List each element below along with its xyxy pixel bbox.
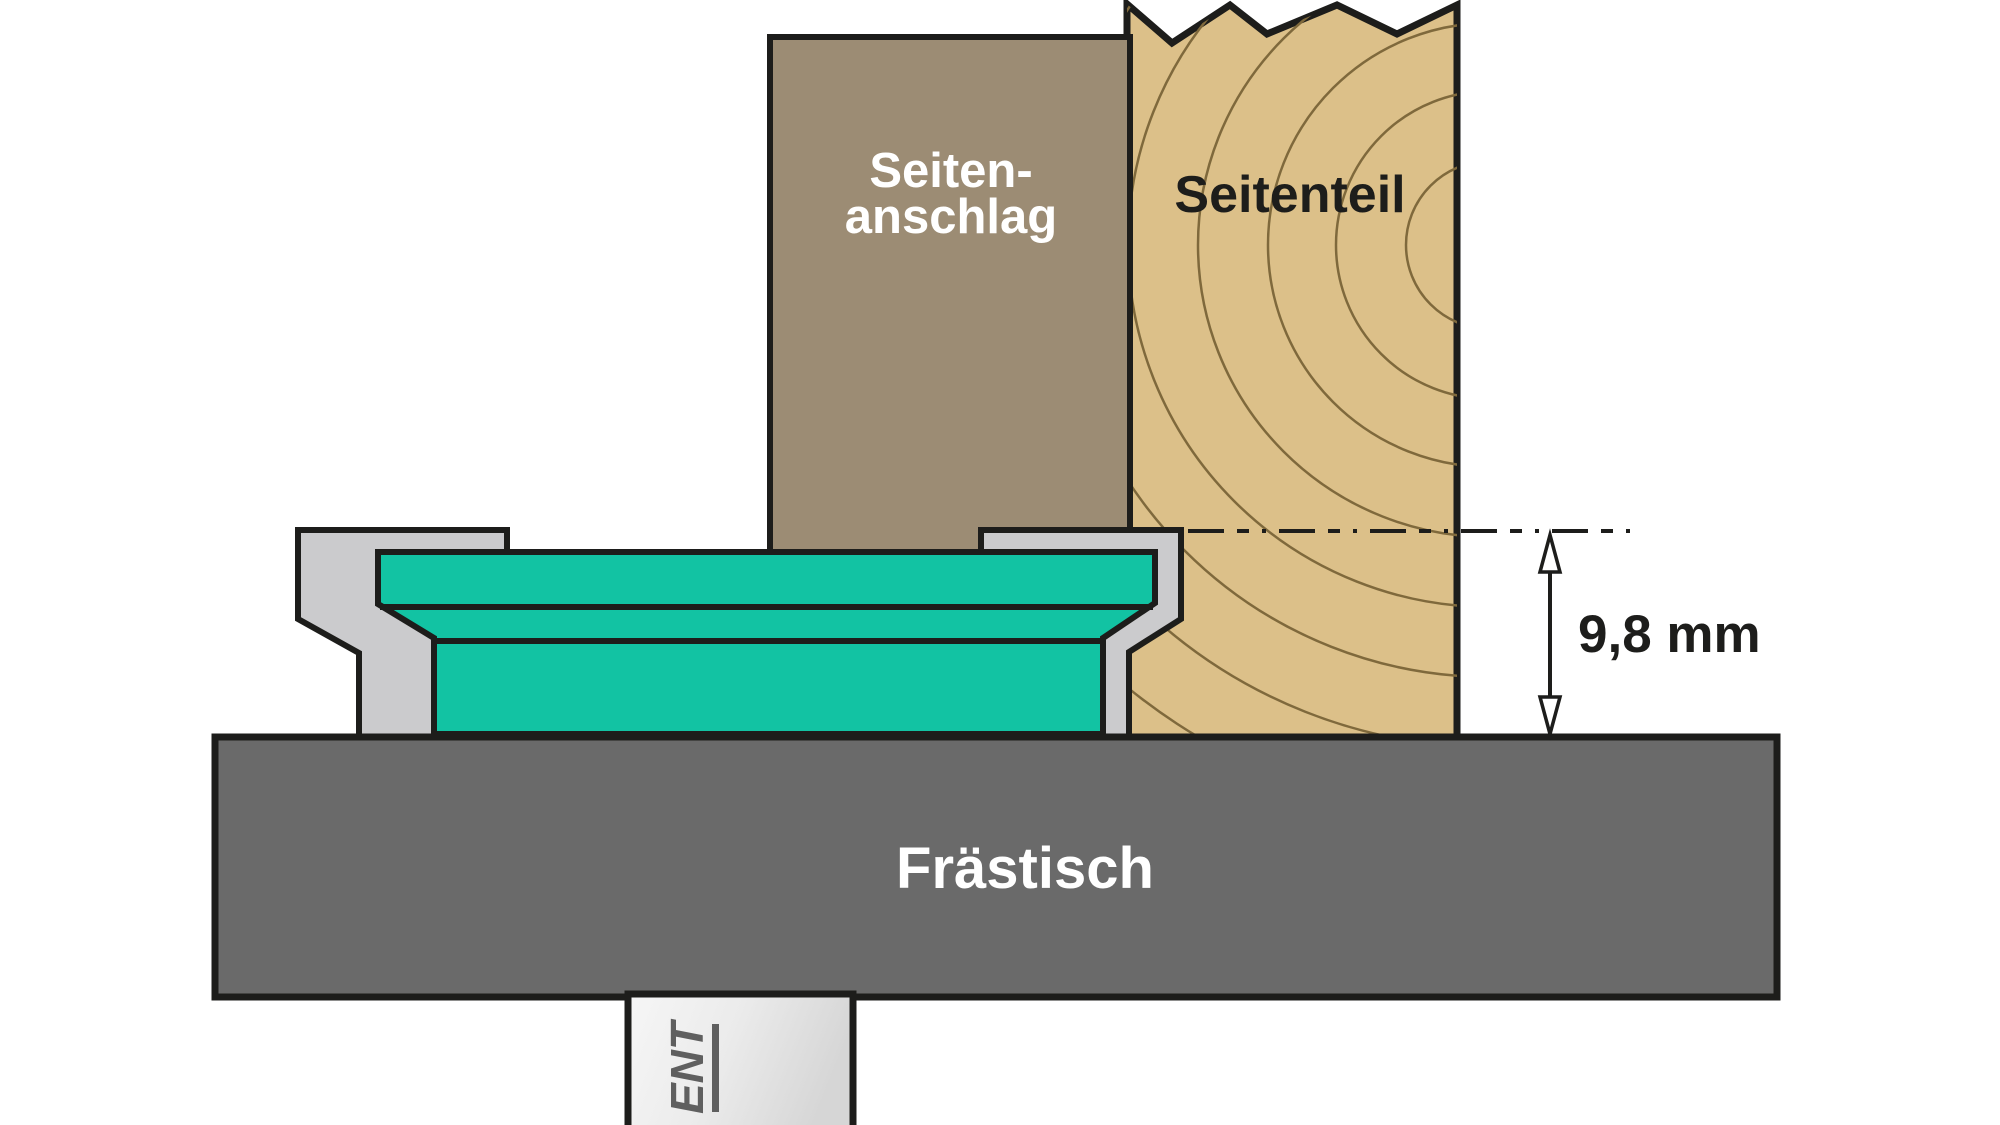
arrowhead-down-icon [1540, 697, 1560, 734]
dimension-arrow [1540, 535, 1560, 734]
spindle-brand-text: ENT [661, 1018, 713, 1114]
spindle-logo: ENT [661, 1018, 719, 1114]
fence-label-line2: anschlag [845, 190, 1057, 244]
fence-shape [770, 37, 1130, 560]
router-table-label: Frästisch [896, 836, 1154, 901]
spindle-logo-bar [712, 1024, 719, 1112]
arrowhead-up-icon [1540, 535, 1560, 572]
workpiece-label: Seitenteil [1174, 166, 1405, 224]
diagram-canvas: ENT Seiten- anschlag Seitenteil Frästisc… [0, 0, 2000, 1125]
dimension-label: 9,8 mm [1578, 605, 1761, 664]
